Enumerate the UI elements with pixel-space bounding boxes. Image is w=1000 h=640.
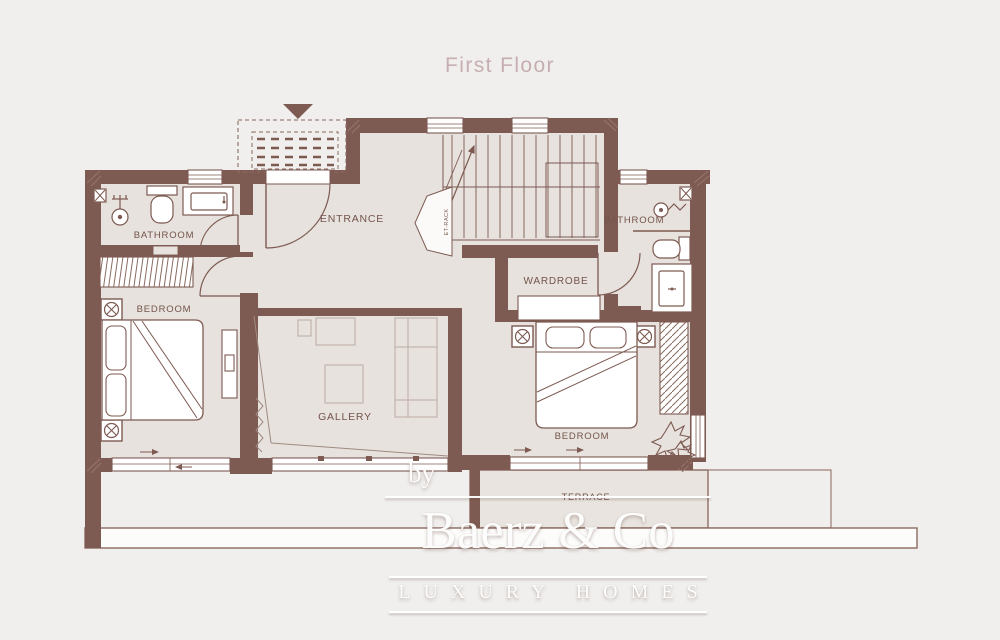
wall-point-icon bbox=[680, 187, 692, 200]
built-in-shelf bbox=[518, 296, 600, 320]
window-stairs-1 bbox=[427, 118, 463, 133]
room-label-entrance: ENTRANCE bbox=[320, 213, 384, 225]
floorplan-page: First Floor bbox=[0, 0, 1000, 640]
window-stairs-2 bbox=[512, 118, 548, 133]
closet-icon bbox=[660, 322, 688, 414]
entrance-canopy bbox=[238, 120, 346, 172]
window-bedroom-right-east bbox=[691, 415, 705, 458]
dresser-icon bbox=[222, 330, 237, 398]
bed-icon bbox=[102, 320, 203, 420]
stair-closet-label: ET-RACK bbox=[444, 208, 450, 235]
sink-icon bbox=[183, 187, 233, 215]
entrance-arrow-icon bbox=[283, 104, 313, 119]
window-gallery bbox=[272, 456, 448, 471]
room-label-wardrobe: WARDROBE bbox=[524, 276, 589, 287]
vanity-handle bbox=[153, 246, 178, 255]
shower-cabin-icon bbox=[652, 264, 692, 312]
wall-point-icon bbox=[94, 189, 106, 202]
toilet-icon bbox=[147, 186, 177, 223]
room-label-bedroom-right: BEDROOM bbox=[555, 431, 610, 442]
floor-plan: ET-RACK bbox=[0, 0, 1000, 640]
side-terrace-outline bbox=[708, 470, 831, 528]
window-bathroom-right bbox=[620, 170, 647, 184]
closet-icon bbox=[100, 257, 193, 287]
wall-handle bbox=[613, 306, 641, 311]
window-bathroom-left bbox=[188, 170, 222, 184]
room-label-bathroom-left: BATHROOM bbox=[134, 230, 195, 241]
ceiling-spot-icon bbox=[101, 299, 122, 320]
balcony-strip bbox=[85, 528, 917, 548]
ceiling-spot-icon bbox=[101, 420, 122, 441]
bed-icon bbox=[536, 322, 637, 428]
room-label-bathroom-right: BATHROOM bbox=[604, 215, 665, 226]
room-label-terrace: TERRACE bbox=[562, 492, 611, 502]
toilet-icon bbox=[653, 237, 690, 260]
ceiling-spot-icon bbox=[512, 326, 533, 347]
room-label-gallery: GALLERY bbox=[318, 411, 372, 423]
room-label-bedroom-left: BEDROOM bbox=[137, 304, 192, 315]
